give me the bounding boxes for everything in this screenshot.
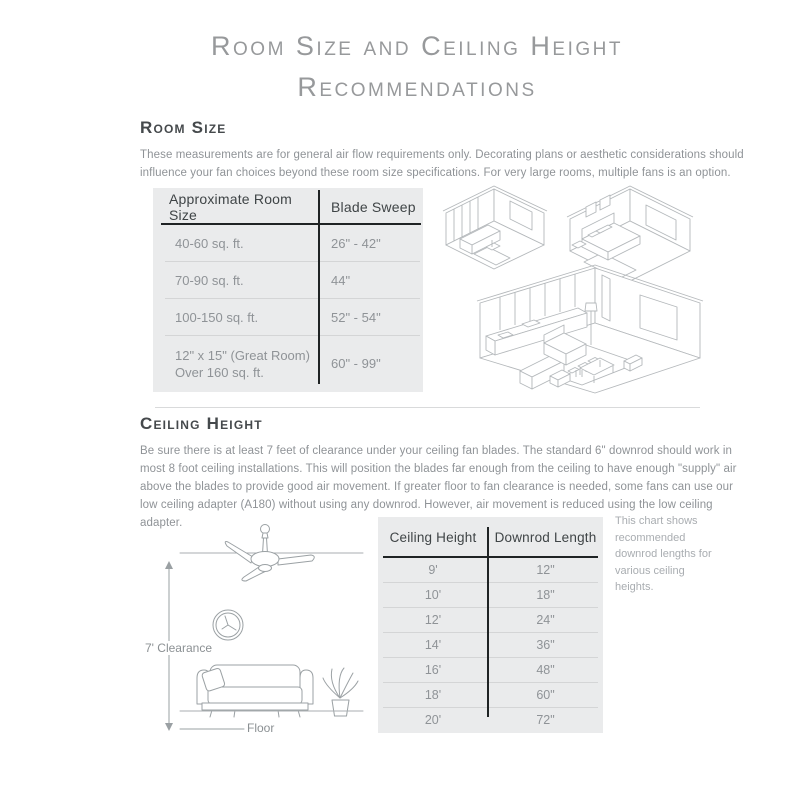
table-cell: 24" [488, 613, 603, 627]
page-title-line-1: Room Size and Ceiling Height [34, 26, 800, 67]
column-divider [318, 190, 320, 384]
table-row: 12' 24" [378, 608, 603, 632]
table-row: 20' 72" [378, 708, 603, 732]
table-row: 100-150 sq. ft. 52" - 54" [153, 299, 423, 335]
table-cell: 72" [488, 713, 603, 727]
great-room-icon [477, 265, 703, 393]
table-cell: 48" [488, 663, 603, 677]
table-row: 9' 12" [378, 558, 603, 582]
table-cell: 26" - 42" [319, 236, 423, 251]
sofa-icon [197, 665, 313, 717]
ceiling-height-heading: Ceiling Height [140, 414, 263, 434]
table-row: 10' 18" [378, 583, 603, 607]
table-cell: 16' [378, 663, 488, 677]
table-row: 18' 60" [378, 683, 603, 707]
clock-icon [213, 610, 243, 640]
downrod-note: This chart shows recommended downrod len… [615, 513, 715, 596]
table-row: 70-90 sq. ft. 44" [153, 262, 423, 298]
header-rule [383, 556, 598, 558]
table-cell: 40-60 sq. ft. [153, 236, 319, 251]
table-cell: 10' [378, 588, 488, 602]
table-row: 12" x 15" (Great Room) Over 160 sq. ft. … [153, 336, 423, 391]
page: Room Size and Ceiling Height Recommendat… [0, 0, 800, 800]
room-size-heading: Room Size [140, 118, 226, 138]
table-cell: 36" [488, 638, 603, 652]
table-row: 16' 48" [378, 658, 603, 682]
table-cell: 12' [378, 613, 488, 627]
ceiling-height-table: Ceiling Height Downrod Length 9' 12" 10'… [378, 517, 603, 733]
table-cell: 100-150 sq. ft. [153, 310, 319, 325]
table-row: 14' 36" [378, 633, 603, 657]
page-title: Room Size and Ceiling Height Recommendat… [34, 26, 800, 108]
table-cell: 20' [378, 713, 488, 727]
column-header: Downrod Length [488, 530, 603, 545]
page-title-line-2: Recommendations [34, 67, 800, 108]
floor-label: Floor [247, 721, 274, 735]
table-header-row: Ceiling Height Downrod Length [378, 517, 603, 558]
table-cell: 12" x 15" (Great Room) Over 160 sq. ft. [153, 347, 319, 381]
table-cell: 14' [378, 638, 488, 652]
table-cell: 60" [488, 688, 603, 702]
table-cell: 44" [319, 273, 423, 288]
table-cell: 9' [378, 563, 488, 577]
table-row: 40-60 sq. ft. 26" - 42" [153, 225, 423, 261]
table-header-row: Approximate Room Size Blade Sweep [153, 188, 423, 225]
rooms-illustration [430, 183, 712, 398]
table-cell: 52" - 54" [319, 310, 423, 325]
column-header: Ceiling Height [378, 530, 488, 545]
office-room-icon [443, 186, 547, 269]
clearance-illustration [140, 520, 370, 745]
column-header: Blade Sweep [319, 199, 423, 215]
column-divider [487, 527, 489, 717]
bedroom-icon [567, 186, 693, 281]
table-cell: 60" - 99" [319, 356, 423, 371]
table-cell: 12" [488, 563, 603, 577]
clearance-label: 7' Clearance [142, 641, 215, 655]
header-rule [161, 223, 421, 225]
column-header: Approximate Room Size [153, 191, 319, 223]
room-size-table: Approximate Room Size Blade Sweep 40-60 … [153, 188, 423, 392]
table-cell: 18" [488, 588, 603, 602]
section-divider [155, 407, 700, 408]
room-size-description: These measurements are for general air f… [140, 146, 750, 182]
plant-icon [323, 668, 358, 716]
table-cell: 18' [378, 688, 488, 702]
table-cell: 70-90 sq. ft. [153, 273, 319, 288]
